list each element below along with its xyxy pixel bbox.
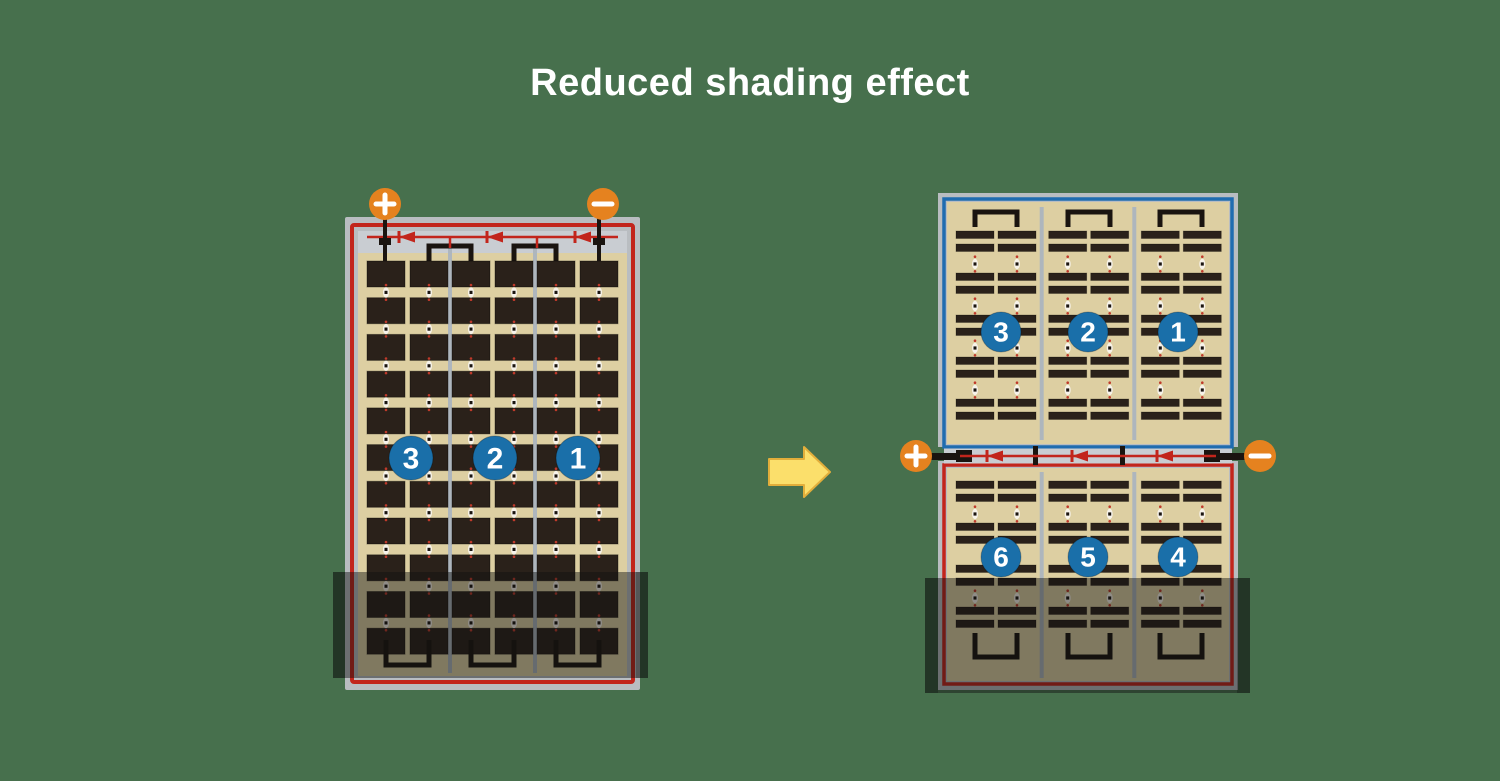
half-cut-cell	[1091, 273, 1129, 281]
half-cut-cell	[956, 523, 994, 531]
solar-cell	[580, 298, 618, 324]
terminal-lead	[1218, 453, 1246, 460]
solar-cell	[367, 481, 405, 507]
half-cut-cell	[1049, 494, 1087, 502]
half-cut-cell	[1049, 399, 1087, 407]
solar-cell	[495, 261, 533, 287]
half-cut-cell	[998, 231, 1036, 239]
string-divider	[1040, 207, 1044, 440]
solar-cell	[537, 518, 575, 544]
half-cut-cell	[1091, 523, 1129, 531]
half-cut-cell	[1183, 370, 1221, 378]
terminal-minus-icon	[587, 188, 619, 220]
half-cut-cell	[1049, 370, 1087, 378]
half-cut-cell	[1091, 244, 1129, 252]
solar-cell	[537, 481, 575, 507]
solar-cell	[452, 334, 490, 360]
string-number-badge: 4	[1158, 537, 1198, 577]
half-cut-cell	[1183, 231, 1221, 239]
solar-cell	[452, 371, 490, 397]
half-cut-cell	[1141, 357, 1179, 365]
svg-text:4: 4	[1170, 542, 1186, 573]
half-cut-cell	[1141, 231, 1179, 239]
svg-text:5: 5	[1080, 542, 1096, 573]
half-cut-cell	[1049, 244, 1087, 252]
solar-cell	[495, 334, 533, 360]
svg-text:1: 1	[570, 443, 587, 476]
solar-cell	[410, 518, 448, 544]
half-cut-cell	[1183, 273, 1221, 281]
svg-text:3: 3	[403, 443, 420, 476]
half-cut-cell	[1141, 412, 1179, 420]
half-cut-cell	[1183, 244, 1221, 252]
right-arrow-icon	[769, 447, 830, 497]
solar-cell	[580, 408, 618, 434]
half-cut-cell	[1049, 286, 1087, 294]
solar-cell	[367, 408, 405, 434]
solar-cell	[410, 408, 448, 434]
half-cut-cell	[998, 244, 1036, 252]
string-number-badge: 6	[981, 537, 1021, 577]
svg-text:2: 2	[1080, 317, 1096, 348]
half-cut-cell	[1091, 231, 1129, 239]
half-cut-cell	[998, 370, 1036, 378]
solar-cell	[537, 261, 575, 287]
string-number-badge: 1	[556, 436, 600, 480]
half-cut-cell	[1091, 399, 1129, 407]
half-cut-cell	[956, 494, 994, 502]
string-number-badge: 3	[981, 312, 1021, 352]
string-number-badge: 2	[1068, 312, 1108, 352]
solar-cell	[495, 298, 533, 324]
terminal-lead	[930, 453, 958, 460]
solar-cell	[452, 481, 490, 507]
solar-cell	[367, 261, 405, 287]
solar-cell	[410, 298, 448, 324]
half-cut-cell	[1049, 523, 1087, 531]
half-cut-cell	[1141, 494, 1179, 502]
half-cut-cell	[1183, 357, 1221, 365]
string-number-badge: 2	[473, 436, 517, 480]
half-cut-cell	[1091, 481, 1129, 489]
half-cut-cell	[1049, 412, 1087, 420]
half-cut-cell	[956, 357, 994, 365]
string-number-badge: 3	[389, 436, 433, 480]
shade-overlay	[333, 572, 648, 678]
half-cut-cell	[998, 399, 1036, 407]
solar-cell	[367, 371, 405, 397]
half-cut-cell	[998, 357, 1036, 365]
solar-cell	[495, 481, 533, 507]
half-cut-cell	[1183, 481, 1221, 489]
solar-cell	[452, 518, 490, 544]
solar-cell	[580, 481, 618, 507]
svg-text:3: 3	[993, 317, 1009, 348]
half-cut-cell	[998, 494, 1036, 502]
half-cut-cell	[1091, 412, 1129, 420]
solar-cell	[367, 334, 405, 360]
solar-cell	[580, 334, 618, 360]
half-cut-cell	[1049, 273, 1087, 281]
half-cut-cell	[1183, 286, 1221, 294]
half-cut-cell	[1141, 370, 1179, 378]
half-cut-cell	[1049, 357, 1087, 365]
solar-cell	[537, 371, 575, 397]
half-cut-cell	[1091, 286, 1129, 294]
infographic-canvas: Reduced shading effect 321 321654	[0, 0, 1500, 781]
terminal-plus-icon	[369, 188, 401, 220]
solar-cell	[367, 518, 405, 544]
half-cut-cell	[1091, 494, 1129, 502]
solar-cell	[410, 261, 448, 287]
solar-cell	[495, 371, 533, 397]
half-cut-cell	[1141, 286, 1179, 294]
half-cut-cell	[1141, 244, 1179, 252]
half-cut-cell	[1141, 399, 1179, 407]
half-cut-cell	[998, 523, 1036, 531]
solar-cell	[367, 298, 405, 324]
solar-cell	[537, 298, 575, 324]
solar-cell	[495, 518, 533, 544]
half-cut-cell	[956, 412, 994, 420]
half-cut-cell	[956, 273, 994, 281]
page-title: Reduced shading effect	[0, 62, 1500, 105]
half-cut-cell	[1091, 370, 1129, 378]
half-cut-cell	[956, 370, 994, 378]
half-cut-cell	[956, 399, 994, 407]
solar-cell	[537, 334, 575, 360]
half-cut-cell	[1183, 399, 1221, 407]
half-cut-cell	[956, 244, 994, 252]
half-cut-cell	[998, 286, 1036, 294]
solar-cell	[452, 298, 490, 324]
svg-text:2: 2	[487, 443, 504, 476]
half-cut-cell	[1183, 494, 1221, 502]
half-cut-cell	[1141, 523, 1179, 531]
svg-text:6: 6	[993, 542, 1009, 573]
half-cut-cell	[956, 481, 994, 489]
string-number-badge: 1	[1158, 312, 1198, 352]
solar-cell	[452, 408, 490, 434]
half-cut-cell	[1183, 523, 1221, 531]
half-cut-cell	[1183, 412, 1221, 420]
terminal-minus-icon	[1244, 440, 1276, 472]
right-module-after: 321654	[880, 185, 1290, 705]
half-cut-cell	[1049, 481, 1087, 489]
half-cut-cell	[956, 286, 994, 294]
half-cut-cell	[1141, 273, 1179, 281]
string-number-badge: 5	[1068, 537, 1108, 577]
solar-cell	[495, 408, 533, 434]
solar-cell	[452, 261, 490, 287]
solar-cell	[580, 261, 618, 287]
solar-cell	[410, 371, 448, 397]
solar-cell	[580, 371, 618, 397]
svg-text:1: 1	[1170, 317, 1186, 348]
transform-arrow-icon	[768, 446, 832, 498]
half-cut-cell	[956, 231, 994, 239]
shade-overlay	[925, 578, 1250, 693]
half-cut-cell	[998, 273, 1036, 281]
solar-cell	[410, 481, 448, 507]
terminal-plus-icon	[900, 440, 932, 472]
string-divider	[1132, 207, 1136, 440]
half-cut-cell	[1049, 231, 1087, 239]
left-module-before: 321	[325, 185, 680, 705]
half-cut-cell	[1091, 357, 1129, 365]
solar-cell	[580, 518, 618, 544]
half-cut-cell	[1141, 481, 1179, 489]
solar-cell	[410, 334, 448, 360]
half-cut-cell	[998, 412, 1036, 420]
solar-cell	[537, 408, 575, 434]
half-cut-cell	[998, 481, 1036, 489]
